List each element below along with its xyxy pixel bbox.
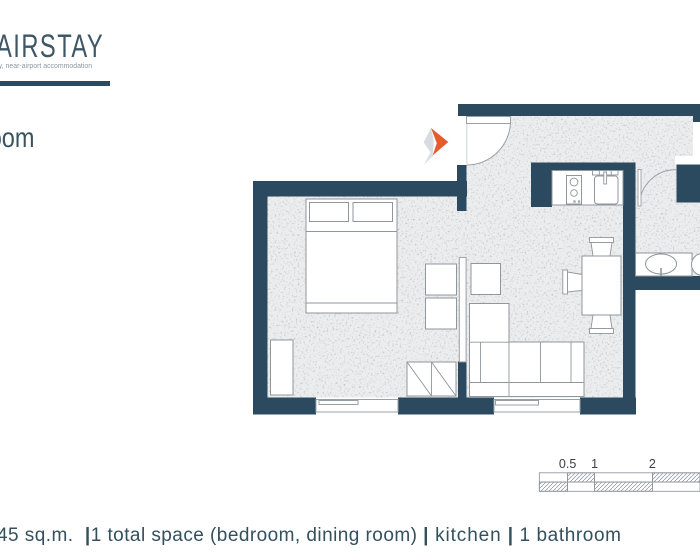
svg-text:0.5: 0.5 [559, 457, 576, 471]
svg-text:1: 1 [591, 457, 598, 471]
svg-text:2: 2 [649, 457, 656, 471]
